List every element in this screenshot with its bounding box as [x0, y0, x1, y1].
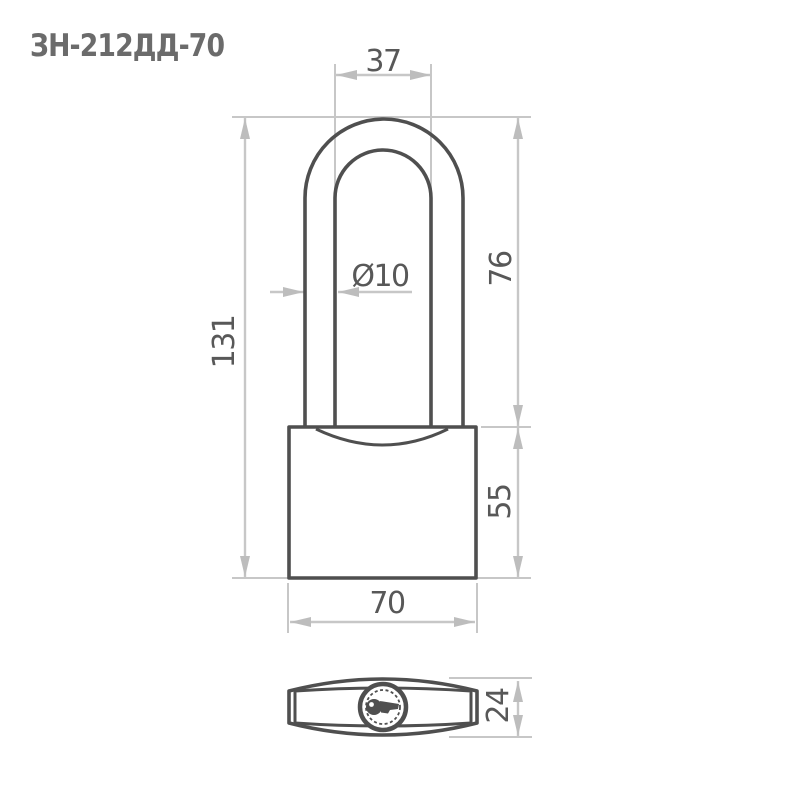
arrow-up-icon: [513, 118, 523, 139]
arrow-down-icon: [513, 556, 523, 577]
arrow-down-icon: [513, 405, 523, 426]
dimension-lines: [245, 75, 518, 736]
extension-lines: [232, 64, 532, 737]
key-head-hole: [369, 702, 374, 707]
arrow-left-icon: [336, 70, 357, 80]
dim-shackle-diameter-label: Ø10: [351, 259, 409, 294]
technical-drawing-page: ЗН-212ДД-70: [0, 0, 800, 800]
dim-shackle-width-label: 37: [365, 44, 400, 79]
dim-body-width-label: 70: [369, 586, 405, 621]
dim-body-depth-label: 24: [481, 688, 516, 724]
bottom-view: [289, 679, 477, 735]
dim-shackle-height-label: 76: [484, 251, 519, 287]
arrow-right-icon: [410, 70, 431, 80]
arrow-up-icon: [240, 118, 250, 139]
dim-overall-height-label: 131: [207, 316, 242, 369]
key-head: [366, 699, 382, 715]
arrow-up-icon: [513, 428, 523, 449]
lock-body: [289, 427, 476, 578]
padlock-technical-drawing: 37 Ø10 76 131 55 70 24: [0, 0, 800, 800]
front-view: [289, 119, 476, 578]
arrow-right-icon: [283, 287, 304, 297]
arrow-left-icon: [290, 617, 311, 627]
dimension-arrows: [240, 70, 523, 736]
arrow-right-icon: [454, 617, 475, 627]
dim-body-height-label: 55: [483, 484, 518, 519]
arrow-down-icon: [240, 556, 250, 577]
